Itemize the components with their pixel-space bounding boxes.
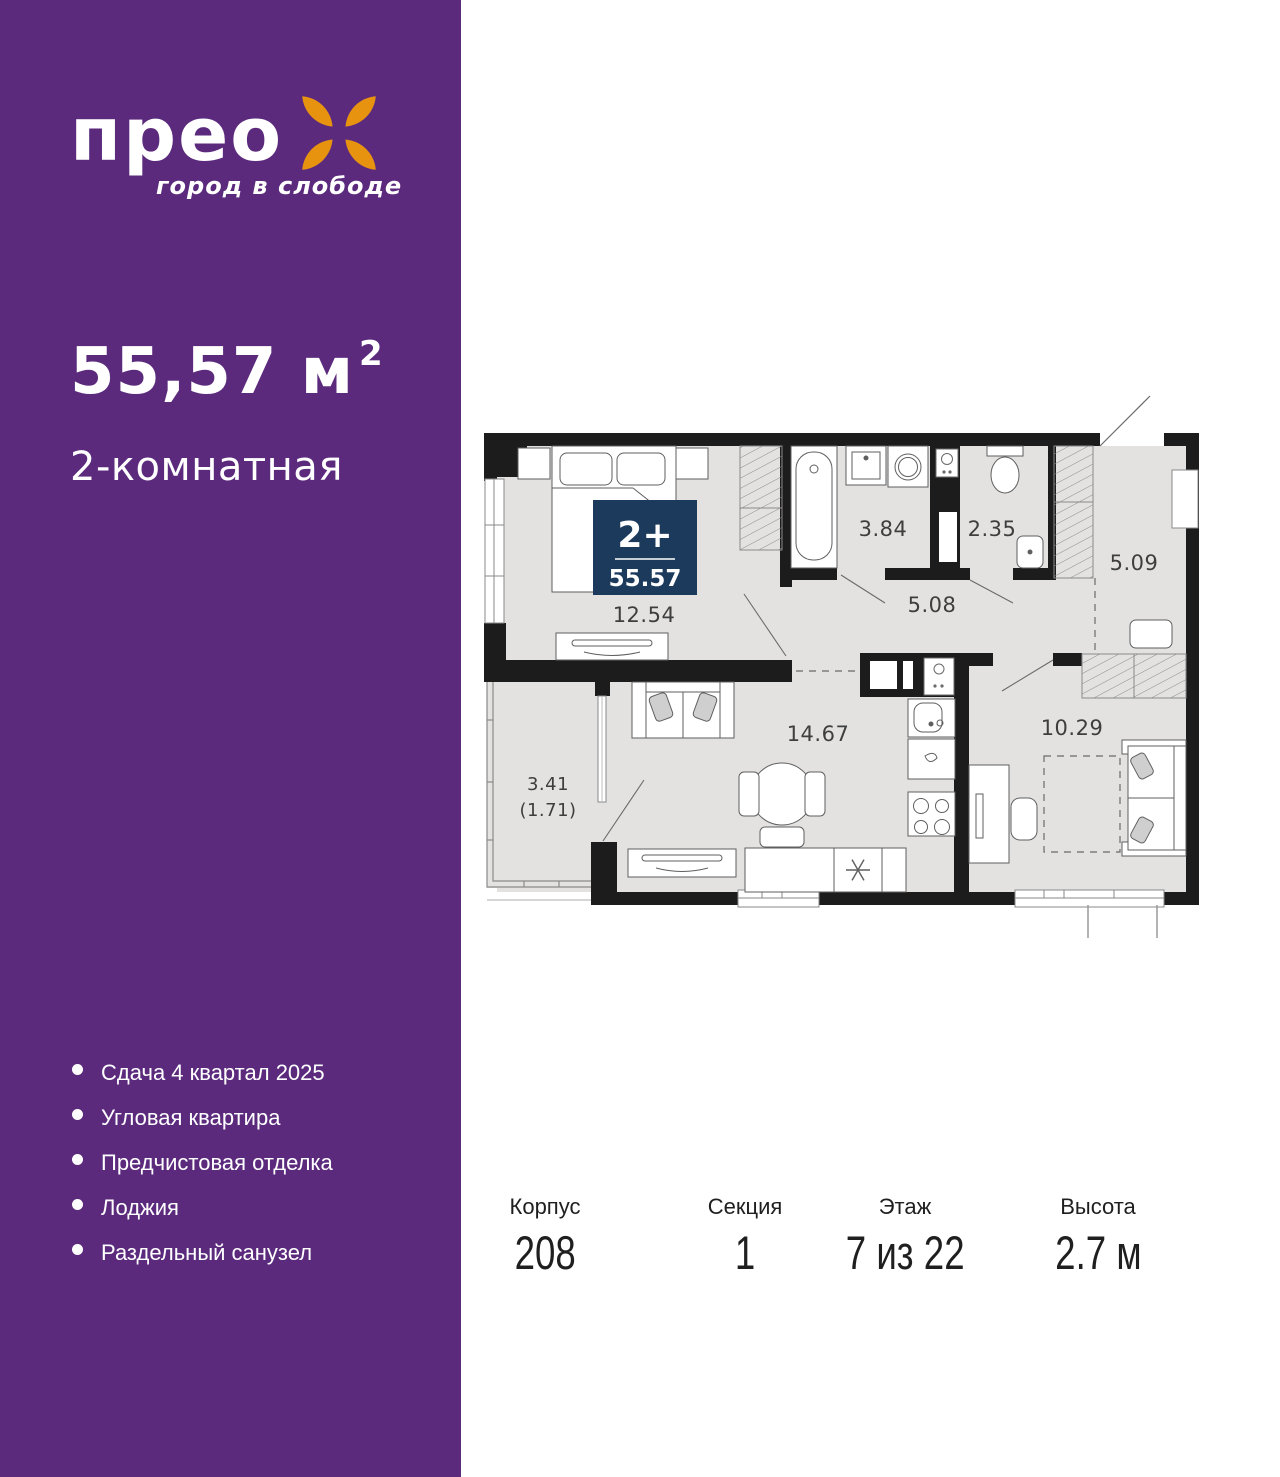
bedroom-wardrobe <box>740 446 782 550</box>
toilet-tank <box>987 446 1023 456</box>
chair <box>805 772 825 816</box>
summary-building: Корпус 208 <box>455 1194 635 1280</box>
monitor <box>976 794 983 838</box>
feature-text: Раздельный санузел <box>101 1240 312 1266</box>
feature-item: Сдача 4 квартал 2025 <box>72 1060 333 1105</box>
desk <box>969 765 1009 863</box>
tv-stand <box>628 849 736 877</box>
badge-area: 55.57 <box>609 566 682 592</box>
balcony-ticks <box>1088 905 1157 938</box>
bullet-icon <box>72 1109 83 1120</box>
chair <box>760 827 804 847</box>
hallway-cabinet <box>1130 620 1172 648</box>
feature-text: Предчистовая отделка <box>101 1150 333 1176</box>
brand-logo: прео <box>70 98 379 172</box>
feature-text: Лоджия <box>101 1195 179 1221</box>
feature-item: Лоджия <box>72 1195 333 1240</box>
kitchen-sink-unit <box>908 699 955 737</box>
summary-label: Этаж <box>815 1194 995 1220</box>
bullet-icon <box>72 1064 83 1075</box>
hallway-wall-panel <box>1172 470 1198 528</box>
room-label-corridor: 5.08 <box>908 593 957 617</box>
floor-plan-svg: 2+ 55.57 12.54 3.84 2.35 5.09 5.08 14.67… <box>484 390 1199 965</box>
dining-table <box>751 763 813 825</box>
loggia-partition <box>598 696 606 802</box>
flower-icon <box>299 92 379 172</box>
pillow <box>560 453 612 485</box>
summary-label: Высота <box>1008 1194 1188 1220</box>
area-superscript: 2 <box>359 334 384 374</box>
flat-type: 2-комнатная <box>70 444 343 490</box>
room-label-hallway: 5.09 <box>1110 551 1159 575</box>
summary-value: 7 из 22 <box>815 1225 995 1280</box>
nightstand <box>518 448 550 479</box>
features-list: Сдача 4 квартал 2025 Угловая квартира Пр… <box>72 1060 333 1285</box>
summary-label: Секция <box>660 1194 830 1220</box>
washing-machine <box>888 446 928 487</box>
room-label-bathroom: 3.84 <box>859 517 908 541</box>
pillow <box>617 453 665 485</box>
feature-text: Угловая квартира <box>101 1105 280 1131</box>
summary-floor: Этаж 7 из 22 <box>815 1194 995 1280</box>
brand-tagline: город в слободе <box>156 172 402 200</box>
area-heading: 55,57 м2 <box>70 340 384 404</box>
brand-logo-text: прео <box>70 98 283 172</box>
room-label-loggia: 3.41 <box>527 774 569 795</box>
nightstand <box>676 448 708 479</box>
summary-value: 1 <box>660 1225 830 1280</box>
summary-value: 2.7 м <box>1008 1225 1188 1280</box>
room-label-living: 14.67 <box>787 722 850 746</box>
floor-plan: 2+ 55.57 12.54 3.84 2.35 5.09 5.08 14.67… <box>484 390 1199 965</box>
summary-value: 208 <box>455 1225 635 1280</box>
hallway-wardrobe <box>1054 446 1093 578</box>
toilet-bowl <box>991 457 1019 493</box>
room-label-loggia2: (1.71) <box>519 800 576 821</box>
feature-text: Сдача 4 квартал 2025 <box>101 1060 325 1086</box>
bullet-icon <box>72 1154 83 1165</box>
bullet-icon <box>72 1199 83 1210</box>
bedroom-window <box>485 479 504 623</box>
living-window <box>738 890 819 907</box>
sidebar: прео город в слободе 55,57 м2 2-комнатна… <box>0 0 461 1477</box>
room2-window <box>1015 890 1164 907</box>
summary-label: Корпус <box>455 1194 635 1220</box>
plan-badge: 2+ 55.57 <box>593 500 697 595</box>
kitchen-counter <box>908 739 955 779</box>
feature-item: Угловая квартира <box>72 1105 333 1150</box>
summary-section: Секция 1 <box>660 1194 830 1280</box>
chair <box>739 772 759 816</box>
badge-rooms: 2+ <box>617 515 672 556</box>
room-label-wc: 2.35 <box>968 517 1017 541</box>
summary-height: Высота 2.7 м <box>1008 1194 1188 1280</box>
area-value: 55,57 м <box>70 335 354 409</box>
desk-chair <box>1011 798 1037 840</box>
bullet-icon <box>72 1244 83 1255</box>
entrance-door-swing <box>1100 396 1150 446</box>
room-label-room2: 10.29 <box>1041 716 1104 740</box>
bathtub <box>791 446 837 568</box>
feature-item: Раздельный санузел <box>72 1240 333 1285</box>
feature-item: Предчистовая отделка <box>72 1150 333 1195</box>
room-label-bedroom: 12.54 <box>613 603 676 627</box>
room2-wardrobe <box>1082 654 1186 698</box>
